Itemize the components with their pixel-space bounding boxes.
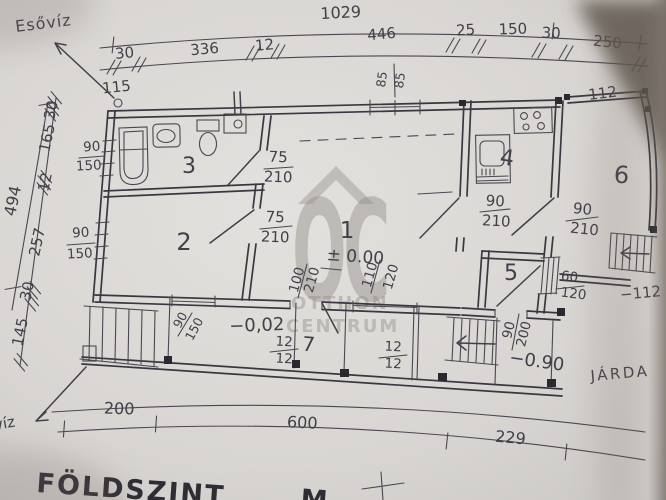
dim-top-seg-12: 12: [254, 35, 275, 55]
dim-top-seg-25: 25: [455, 20, 475, 39]
bath-door-h: 210: [264, 168, 293, 187]
terrace-post: [292, 360, 300, 368]
top-window-left: 85: [373, 70, 390, 88]
post-right-h: 12: [384, 356, 402, 373]
scale-prefix: M: [300, 484, 331, 500]
dim-top-seg-150: 150: [498, 20, 527, 39]
room6-door-w: 90: [572, 199, 593, 219]
terrace-post: [164, 356, 172, 364]
edge-shadow-right: [648, 0, 666, 500]
dim-top-seg-30b: 30: [541, 24, 561, 43]
room-number-5: 5: [504, 261, 518, 286]
room5-window-h: 120: [560, 285, 588, 304]
floorplan-photo: OC OTTHON CENTRUM 1029 30 336 12 446 25 …: [0, 0, 666, 500]
dim-top-seg-336: 336: [190, 39, 220, 59]
room-number-1: 1: [340, 218, 355, 244]
post-right-w: 12: [384, 339, 402, 356]
dim-bottom-600: 600: [287, 412, 318, 433]
dim-bottom-200: 200: [104, 398, 135, 418]
room-number-3: 3: [182, 154, 196, 179]
terrace-post: [547, 379, 556, 387]
left-window-lower-w: 90: [72, 225, 90, 242]
corner-offset-115: 115: [101, 77, 131, 98]
kitchen-door-h: 210: [481, 211, 511, 230]
bath-door-w: 75: [268, 148, 288, 167]
terrace-post: [438, 373, 447, 381]
dim-top-seg-446: 446: [367, 24, 397, 44]
post-left-w: 12: [275, 334, 293, 351]
dim-top-seg-30a: 30: [114, 43, 135, 63]
floorplan-drawing: OC OTTHON CENTRUM 1029 30 336 12 446 25 …: [0, 0, 666, 500]
post-left-h: 12: [275, 351, 293, 368]
room5-window-w: 60: [560, 268, 579, 286]
dim-bottom-229: 229: [494, 427, 526, 449]
left-window-upper-w: 90: [83, 139, 101, 156]
left-window-upper-h: 150: [75, 157, 102, 174]
dim-top-total: 1029: [320, 2, 362, 23]
top-window-right: 85: [391, 71, 408, 89]
kitchen-door-w: 90: [485, 192, 505, 211]
room-number-2: 2: [176, 228, 191, 256]
left-window-lower-h: 150: [66, 245, 93, 262]
room2-door-w: 75: [265, 208, 285, 227]
room-number-7: 7: [301, 332, 316, 357]
terrace-post: [340, 369, 349, 377]
room2-door-h: 210: [261, 228, 290, 247]
